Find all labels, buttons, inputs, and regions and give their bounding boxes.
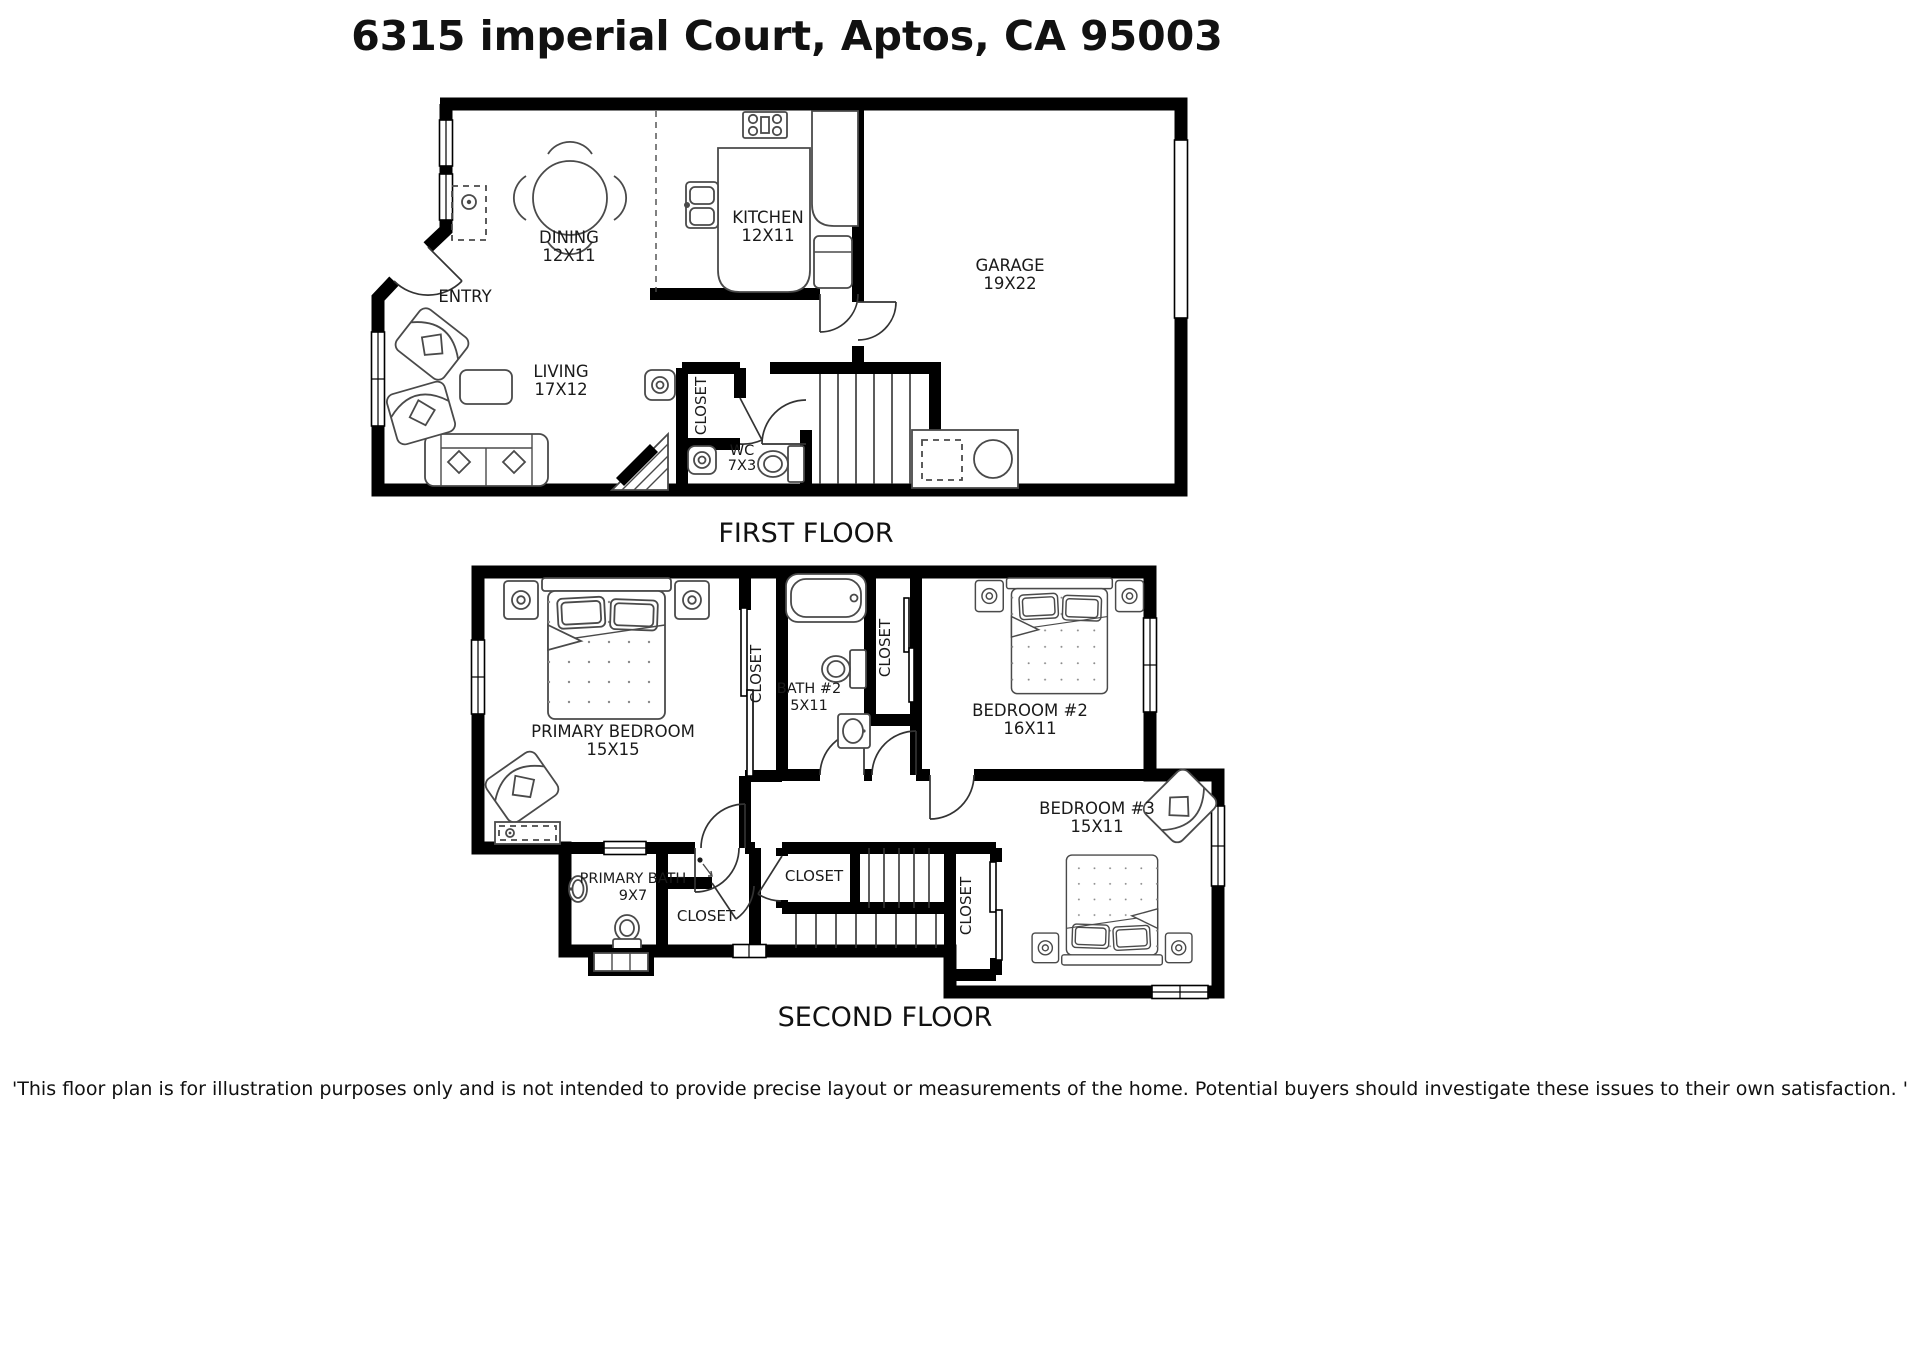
coffee-table [460, 370, 512, 404]
floor-plan-canvas: 6315 imperial Court, Aptos, CA 95003 [0, 0, 1920, 1357]
hall-threshold [733, 945, 766, 958]
wc-label: WC [730, 443, 754, 459]
primary-bath-size: 9X7 [619, 888, 647, 904]
second-floor-caption: SECOND FLOOR [778, 1002, 993, 1033]
wc-toilet-icon [758, 446, 804, 482]
fireplace [612, 434, 668, 490]
bedroom2-label: BEDROOM #2 [972, 701, 1088, 720]
dining-size: 12X11 [542, 246, 595, 265]
primary-bath-toilet-icon [613, 915, 641, 951]
wc-door [762, 400, 806, 444]
kitchen-sink-icon [684, 182, 718, 228]
bedroom2-bed [975, 578, 1143, 694]
hall-closet-label: CLOSET [692, 376, 710, 435]
garage-label: GARAGE [975, 256, 1044, 275]
garage-entry-door [858, 302, 896, 340]
fridge-icon [814, 236, 852, 288]
sofa [425, 434, 548, 486]
kitchen-size: 12X11 [741, 226, 794, 245]
bedroom3-closet-sliding-doors [990, 862, 1002, 960]
bedroom-bench [495, 822, 560, 844]
living-label: LIVING [533, 362, 588, 381]
second-floor-stairs [796, 848, 936, 948]
primary-bedroom-window [472, 640, 485, 714]
primary-bedroom-size: 15X15 [586, 740, 639, 759]
wc-sink-icon [688, 446, 716, 474]
page-title: 6315 imperial Court, Aptos, CA 95003 [351, 12, 1223, 60]
washer-dryer-icon [912, 430, 1018, 488]
first-floor-caption: FIRST FLOOR [718, 518, 893, 549]
walkin-closet-label: CLOSET [677, 907, 736, 925]
bedroom2-window [1144, 618, 1157, 712]
primary-bedroom-label: PRIMARY BEDROOM [531, 722, 695, 741]
bedroom3-window [1212, 806, 1225, 886]
stair-closet-label: CLOSET [785, 867, 844, 885]
bedroom2-size: 16X11 [1003, 719, 1056, 738]
living-window [372, 332, 385, 426]
bedroom3-bed [1032, 855, 1192, 965]
bedroom3-size: 15X11 [1070, 817, 1123, 836]
stove-icon [743, 112, 787, 138]
second-floor-plan: PRIMARY BEDROOM 15X15 CLOSET BATH #2 5X1… [472, 572, 1225, 999]
dining-cabinet [452, 186, 486, 240]
primary-bed [504, 578, 709, 719]
garage-size: 19X22 [983, 274, 1036, 293]
floor-plan-page: 6315 imperial Court, Aptos, CA 95003 [0, 0, 1920, 1357]
primary-bath-label: PRIMARY BATH [580, 871, 687, 887]
stair-closet-door [758, 856, 782, 901]
side-table-lamp [645, 370, 675, 400]
wc-size: 7X3 [728, 458, 756, 474]
primary-bath-window [604, 842, 646, 855]
primary-bath-vanity [588, 948, 654, 976]
primary-bedroom-door [701, 804, 745, 848]
first-floor-stairs [820, 374, 910, 484]
bath2-closet-label: CLOSET [876, 618, 894, 677]
first-floor-plan: DINING 12X11 KITCHEN 12X11 GARAGE 19X22 … [372, 104, 1188, 490]
armchair [392, 305, 471, 383]
dining-label: DINING [539, 228, 599, 247]
bath2-size: 5X11 [790, 698, 828, 714]
bath2-label: BATH #2 [777, 681, 842, 697]
bedroom2-door [872, 731, 916, 775]
bathtub-icon [786, 574, 866, 622]
hall-closet-door [740, 398, 762, 444]
shower-head-icon [697, 857, 712, 876]
bath2-sink-icon [838, 714, 870, 748]
bedroom3-closet-label: CLOSET [957, 876, 975, 935]
disclaimer-text: 'This floor plan is for illustration pur… [12, 1078, 1908, 1100]
entry-label: ENTRY [438, 287, 492, 306]
primary-closet-label: CLOSET [747, 644, 765, 703]
bedroom3-bottom-window [1152, 986, 1208, 999]
garage-door-opening [1175, 140, 1188, 318]
kitchen-label: KITCHEN [732, 208, 804, 227]
bedroom3-door [930, 775, 974, 819]
living-size: 17X12 [534, 380, 587, 399]
bedroom3-label: BEDROOM #3 [1039, 799, 1155, 818]
bedroom-chair [483, 748, 562, 825]
